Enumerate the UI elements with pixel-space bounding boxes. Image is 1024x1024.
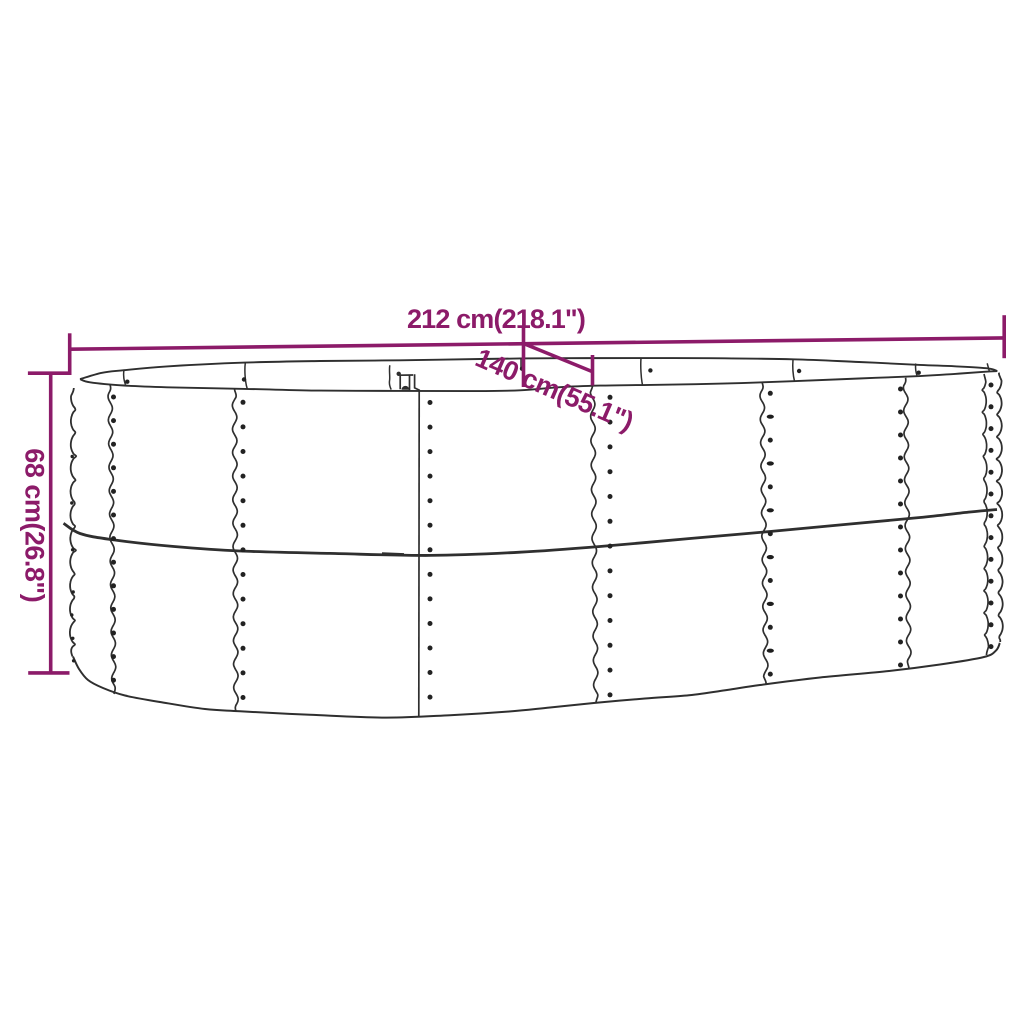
svg-text:68 cm(26.8"): 68 cm(26.8"): [20, 448, 50, 602]
svg-text:212 cm(218.1"): 212 cm(218.1"): [407, 304, 585, 334]
